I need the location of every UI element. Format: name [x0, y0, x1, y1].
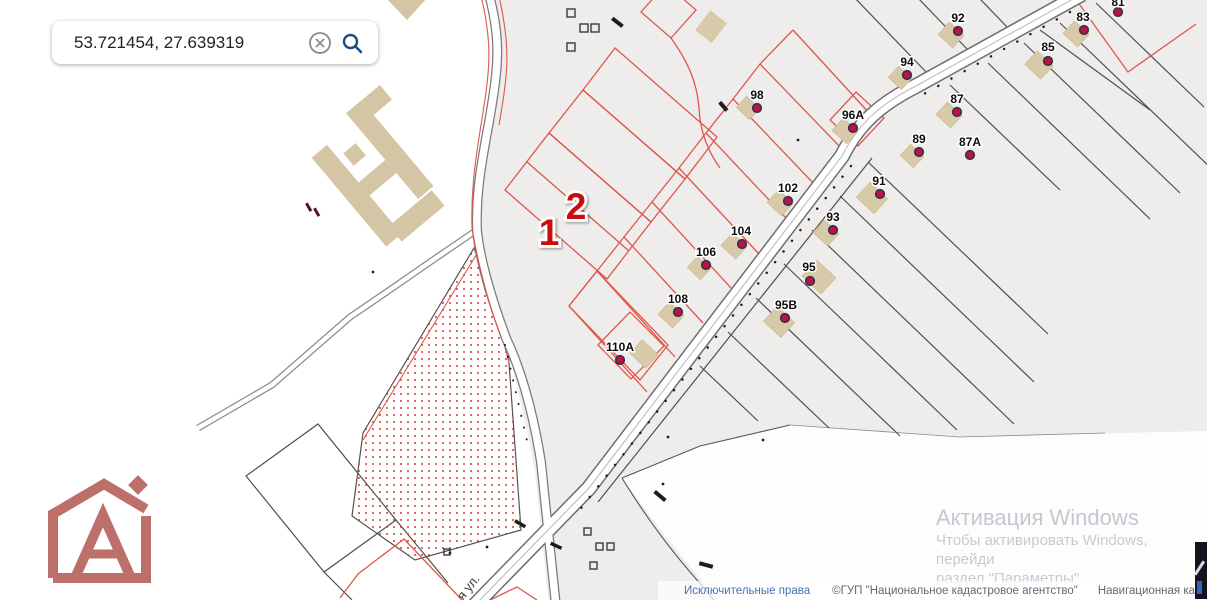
house-marker[interactable]: [806, 277, 815, 286]
search-panel: [52, 21, 378, 64]
house-label: 96A: [842, 108, 864, 122]
corner-widget[interactable]: [1195, 542, 1207, 599]
house-label: 94: [900, 55, 914, 69]
corner-widget-blue-bar: [1197, 581, 1202, 594]
footer-credits: Исключительные права ©ГУП "Национальное …: [658, 581, 1207, 600]
agency-logo: [42, 474, 167, 586]
house-label: 89: [912, 132, 926, 146]
house-label: 98: [750, 88, 764, 102]
house-marker[interactable]: [915, 148, 924, 157]
house-marker[interactable]: [781, 314, 790, 323]
house-marker[interactable]: [753, 104, 762, 113]
corner-widget-glyph: [1195, 560, 1205, 575]
house-marker[interactable]: [903, 71, 912, 80]
house-marker[interactable]: [674, 308, 683, 317]
exclusive-rights-link[interactable]: Исключительные права: [684, 585, 810, 597]
house-marker[interactable]: [1080, 26, 1089, 35]
selection-number: 2: [566, 186, 587, 227]
house-marker[interactable]: [702, 261, 711, 270]
map-name-text: Навигационная карта РБ: [1098, 585, 1207, 597]
house-marker[interactable]: [829, 226, 838, 235]
house-marker[interactable]: [784, 197, 793, 206]
search-button[interactable]: [338, 29, 366, 57]
copyright-text: ©ГУП "Национальное кадастровое агентство…: [832, 585, 1078, 597]
house-label: 92: [951, 11, 965, 25]
house-label: 102: [778, 181, 798, 195]
house-label: 95B: [775, 298, 797, 312]
house-label: 91: [872, 174, 886, 188]
house-marker[interactable]: [849, 124, 858, 133]
house-marker[interactable]: [954, 27, 963, 36]
house-marker[interactable]: [953, 108, 962, 117]
house-label: 108: [668, 292, 688, 306]
clear-icon: [308, 31, 332, 55]
house-marker[interactable]: [966, 151, 975, 160]
house-label: 87A: [959, 135, 981, 149]
search-icon: [340, 31, 364, 55]
house-label: 87: [950, 92, 964, 106]
house-label: 110A: [606, 340, 634, 354]
house-label: 106: [696, 245, 716, 259]
clear-search-button[interactable]: [306, 29, 334, 57]
house-label: 95: [802, 260, 816, 274]
cadastral-map[interactable]: я ул. 92949896A85878987A9110293104106951…: [0, 0, 1207, 600]
house-marker[interactable]: [1044, 57, 1053, 66]
search-input[interactable]: [72, 32, 302, 54]
house-label: 104: [731, 224, 751, 238]
white-area-bottom-right: [622, 425, 1207, 600]
house-marker[interactable]: [616, 356, 625, 365]
map-canvas[interactable]: я ул. 92949896A85878987A9110293104106951…: [0, 0, 1207, 600]
house-marker[interactable]: [738, 240, 747, 249]
house-marker[interactable]: [876, 190, 885, 199]
house-label: 81: [1111, 0, 1125, 9]
house-a-logo-icon: [42, 474, 167, 586]
selection-number: 1: [539, 212, 560, 253]
house-label: 85: [1041, 40, 1055, 54]
house-label: 93: [826, 210, 840, 224]
house-label: 83: [1076, 10, 1090, 24]
